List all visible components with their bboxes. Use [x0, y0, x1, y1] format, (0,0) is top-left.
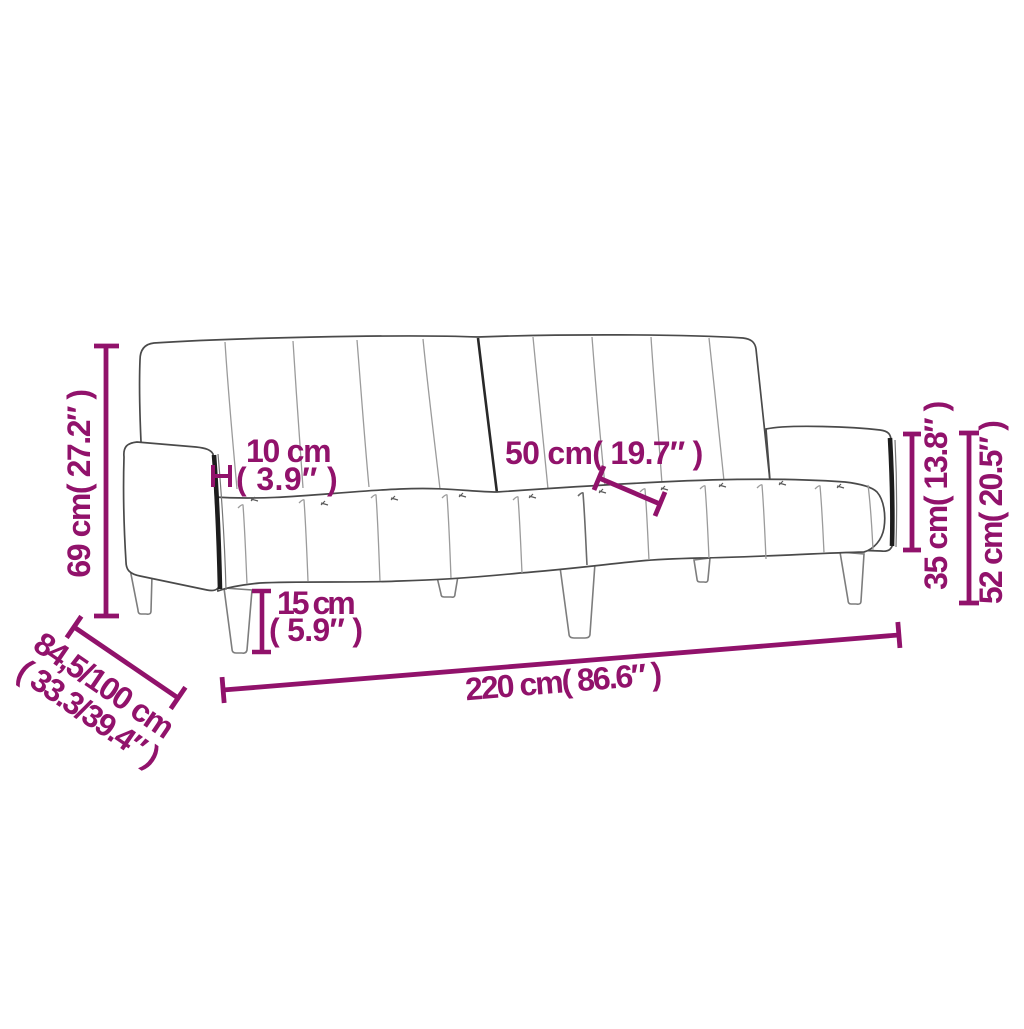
svg-text:35 cm( 13.8″ ): 35 cm( 13.8″ )	[918, 401, 954, 590]
svg-text:( 5.9″ ): ( 5.9″ )	[269, 612, 362, 648]
svg-text:52 cm( 20.5″ ): 52 cm( 20.5″ )	[973, 421, 1009, 604]
svg-text:50 cm( 19.7″ ): 50 cm( 19.7″ )	[505, 435, 703, 471]
svg-text:( 3.9″ ): ( 3.9″ )	[236, 461, 338, 497]
svg-text:69 cm( 27.2″ ): 69 cm( 27.2″ )	[61, 390, 97, 578]
